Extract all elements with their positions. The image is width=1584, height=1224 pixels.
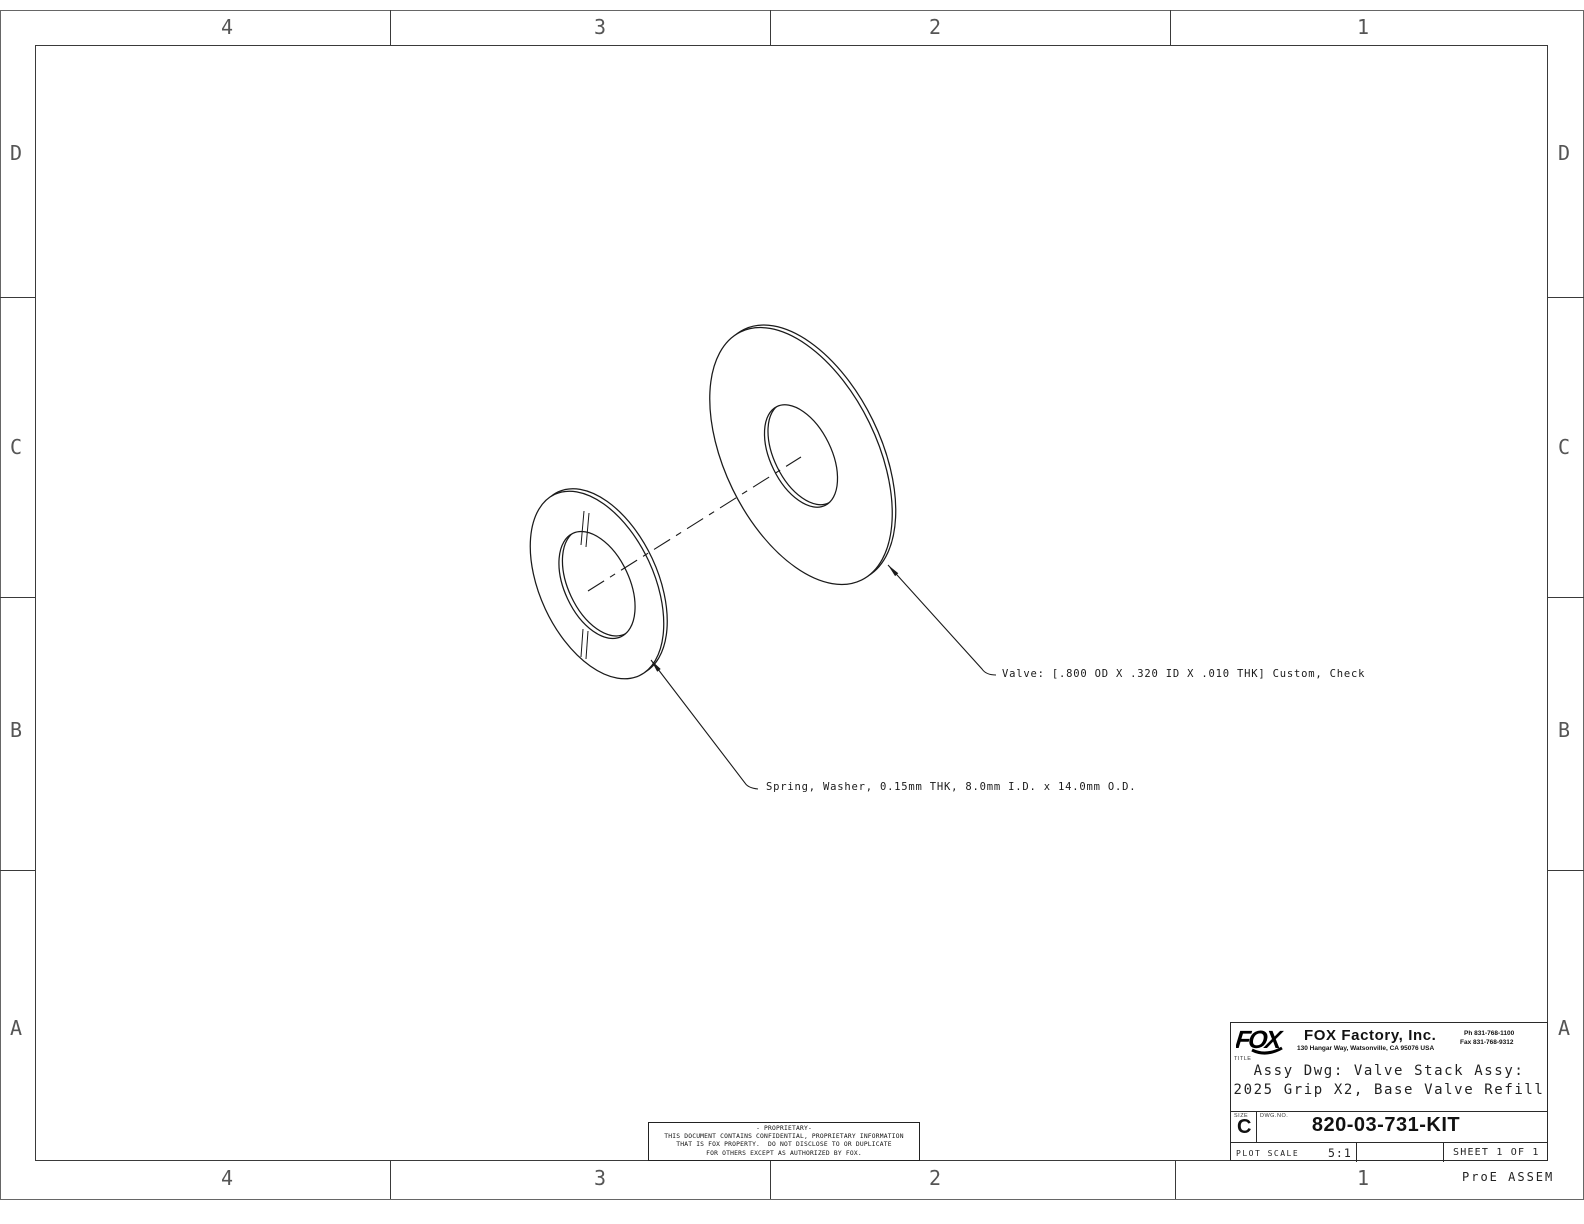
titleblock-divider-2 bbox=[1231, 1142, 1547, 1143]
company-fax: Fax 831-768-9312 bbox=[1460, 1039, 1514, 1046]
sheet-cell-divider bbox=[1443, 1142, 1444, 1162]
company-name: FOX Factory, Inc. bbox=[1304, 1027, 1436, 1044]
title-block: FOX FOX Factory, Inc. 130 Hangar Way, Wa… bbox=[1230, 1022, 1548, 1161]
fox-logo: FOX bbox=[1236, 1025, 1298, 1056]
spring-leader-line bbox=[651, 660, 758, 789]
spring-callout-text: Spring, Washer, 0.15mm THK, 8.0mm I.D. x… bbox=[766, 781, 1136, 793]
valve-leader-arrowhead bbox=[888, 565, 898, 576]
proprietary-line3: THAT IS FOX PROPERTY. DO NOT DISCLOSE TO… bbox=[649, 1141, 919, 1149]
valve-washer-drawing bbox=[672, 296, 933, 613]
drawing-title-line1: Assy Dwg: Valve Stack Assy: bbox=[1231, 1063, 1547, 1079]
titleblock-divider-1 bbox=[1231, 1111, 1547, 1112]
plot-scale-label: PLOT SCALE bbox=[1236, 1149, 1299, 1158]
valve-leader-line bbox=[888, 565, 996, 675]
proprietary-line2: THIS DOCUMENT CONTAINS CONFIDENTIAL, PRO… bbox=[649, 1133, 919, 1141]
plot-scale-divider bbox=[1356, 1142, 1357, 1162]
dwg-no-value: 820-03-731-KIT bbox=[1256, 1114, 1516, 1137]
drawing-sheet: 4 3 2 1 4 3 2 1 D C B A D C B A bbox=[0, 0, 1584, 1224]
proprietary-line1: - PROPRIETARY- bbox=[649, 1125, 919, 1133]
proprietary-notice: - PROPRIETARY- THIS DOCUMENT CONTAINS CO… bbox=[648, 1122, 920, 1161]
title-label: TITLE bbox=[1234, 1056, 1251, 1062]
drawing-title-line2: 2025 Grip X2, Base Valve Refill bbox=[1231, 1082, 1547, 1098]
footer-note: ProE ASSEM bbox=[1462, 1170, 1554, 1184]
size-value: C bbox=[1237, 1116, 1251, 1139]
sheet-number: SHEET 1 OF 1 bbox=[1453, 1147, 1540, 1158]
proprietary-line4: FOR OTHERS EXCEPT AS AUTHORIZED BY FOX. bbox=[649, 1150, 919, 1158]
valve-callout-text: Valve: [.800 OD X .320 ID X .010 THK] Cu… bbox=[1002, 668, 1365, 680]
company-phone: Ph 831-768-1100 bbox=[1464, 1030, 1514, 1037]
plot-scale-value: 5:1 bbox=[1328, 1146, 1352, 1160]
company-address: 130 Hangar Way, Watsonville, CA 95076 US… bbox=[1297, 1045, 1434, 1052]
